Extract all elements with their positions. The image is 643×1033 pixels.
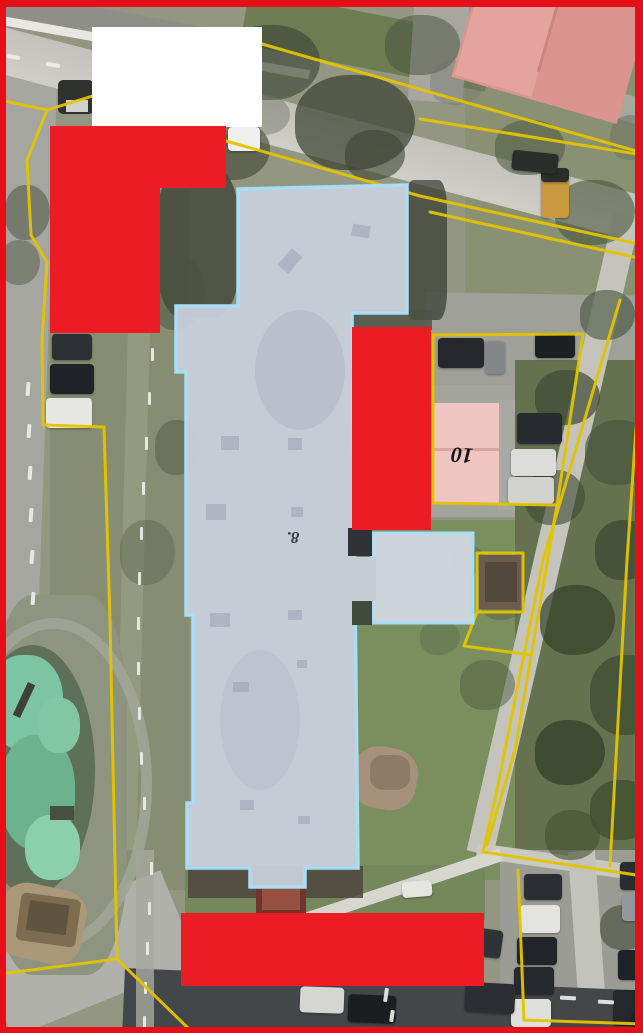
roof-stain [220, 650, 300, 790]
redaction-white-top [92, 27, 262, 127]
building-8-annex[interactable] [372, 533, 473, 623]
redaction-red-middle [352, 327, 431, 530]
parcel-boundary-line [483, 300, 620, 852]
parcel-boundary-line [483, 852, 643, 876]
shadow-gap [348, 528, 372, 556]
redaction-red-left [50, 126, 160, 333]
roof-stain [255, 310, 345, 430]
shadow-gap [352, 601, 372, 625]
parcel-boundary-line [433, 334, 583, 505]
redaction-red-bottom [181, 913, 484, 986]
parcel-boundary-line [518, 870, 524, 1020]
selected-building-group [176, 185, 473, 887]
parcel-boundary-line [420, 119, 643, 155]
parcel-boundary-line [430, 212, 643, 259]
cadastral-overlay [0, 0, 643, 1033]
aerial-map[interactable]: 8.10 [0, 0, 643, 1033]
parcel-boundary-line [0, 959, 117, 974]
parcel-boundary-line [524, 1020, 643, 1024]
parcel-boundary-line [610, 356, 641, 866]
connector-corridor [350, 557, 376, 601]
parcel-boundary-line [477, 553, 523, 612]
